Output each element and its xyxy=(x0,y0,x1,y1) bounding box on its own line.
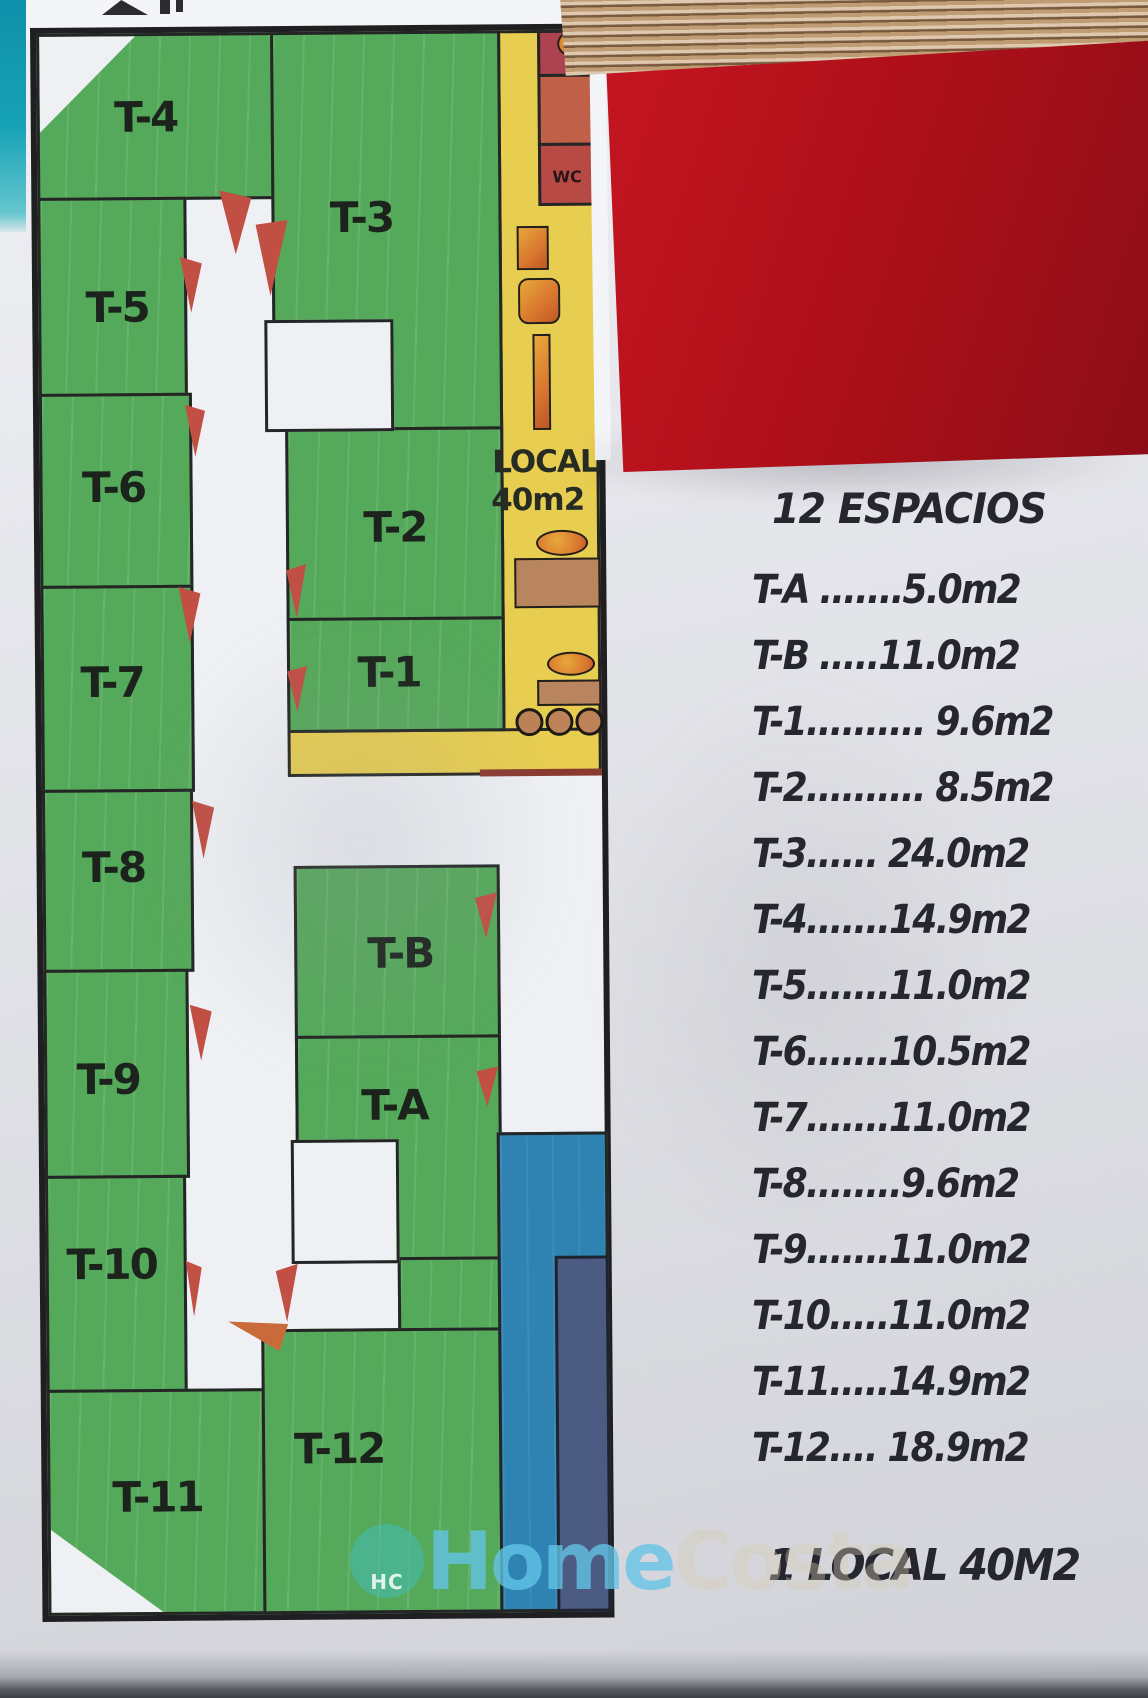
paper-bottom-edge xyxy=(0,1650,1148,1698)
room-label-t12: T-12 xyxy=(294,1424,385,1474)
legend-item: T-1.......... 9.6m2 xyxy=(752,689,1108,755)
legend-item: T-8........9.6m2 xyxy=(752,1151,1108,1217)
stool-icon xyxy=(545,708,573,736)
furniture-rounded xyxy=(518,278,560,324)
legend-item: T-5.......11.0m2 xyxy=(752,953,1108,1019)
legend-item: T-11.....14.9m2 xyxy=(752,1349,1108,1415)
door-swing-icon xyxy=(219,190,252,254)
room-label-t10: T-10 xyxy=(66,1240,157,1290)
door-swing-icon xyxy=(190,1005,212,1061)
legend-item: T-6.......10.5m2 xyxy=(752,1019,1108,1085)
wc-label: WC xyxy=(552,167,582,186)
threshold-strip xyxy=(480,769,602,777)
stair-cutout xyxy=(264,319,394,432)
stool-icon xyxy=(575,708,603,736)
room-label-ta: T-A xyxy=(361,1080,428,1130)
room-label-t2: T-2 xyxy=(363,502,427,551)
room-ta-extension xyxy=(398,1256,504,1335)
door-swing-icon xyxy=(276,1264,298,1322)
legend-item: T-B .....11.0m2 xyxy=(752,623,1108,689)
door-swing-icon xyxy=(186,1261,202,1317)
space-list-items: T-A .......5.0m2T-B .....11.0m2T-1......… xyxy=(752,557,1148,1481)
room-label-t8: T-8 xyxy=(82,843,146,892)
legend-item: T-9.......11.0m2 xyxy=(752,1217,1108,1283)
room-label-t9: T-9 xyxy=(76,1055,140,1104)
photo-of-floorplan-sheet: { "plan": { "rooms": [ {"id": "t4", "lab… xyxy=(0,0,1148,1698)
red-book-cover xyxy=(606,28,1148,472)
legend-item: T-10.....11.0m2 xyxy=(752,1283,1108,1349)
service-room xyxy=(537,74,597,146)
stool-icon xyxy=(515,708,543,736)
room-label-t3: T-3 xyxy=(330,193,394,242)
door-swing-icon xyxy=(192,801,214,859)
partial-print-glyph xyxy=(176,0,183,12)
space-list: 12 ESPACIOS T-A .......5.0m2T-B .....11.… xyxy=(752,484,1148,1481)
floor-plan: T-4 T-3 T-5 T-6 T-2 T-1 T-7 T-8 T-B T-9 … xyxy=(30,24,615,1622)
legend-item: T-7.......11.0m2 xyxy=(752,1085,1108,1151)
room-label-tb: T-B xyxy=(367,928,433,978)
space-list-title: 12 ESPACIOS xyxy=(772,484,1125,533)
room-label-t5: T-5 xyxy=(85,283,149,332)
room-label-t7: T-7 xyxy=(80,658,144,707)
room-label-t4: T-4 xyxy=(114,92,178,141)
furniture-rect xyxy=(517,226,549,270)
legend-item: T-2.......... 8.5m2 xyxy=(752,755,1108,821)
table-edge xyxy=(0,0,26,232)
door-swing-icon xyxy=(228,1321,288,1351)
legend-item: T-A .......5.0m2 xyxy=(752,557,1108,623)
legend-item: T-4.......14.9m2 xyxy=(752,887,1108,953)
room-label-t6: T-6 xyxy=(82,463,146,512)
stair-cutout xyxy=(291,1139,400,1264)
pool-deep-area xyxy=(555,1255,612,1611)
partial-print-glyph xyxy=(160,0,170,14)
legend-item: T-3...... 24.0m2 xyxy=(752,821,1108,887)
room-label-t11: T-11 xyxy=(112,1472,203,1522)
counter-rect xyxy=(514,558,600,609)
furniture-tall xyxy=(532,334,551,430)
room-label-t1: T-1 xyxy=(357,647,421,696)
local-area-label: 40m2 xyxy=(476,482,600,519)
space-list-footer: 1 LOCAL 40M2 xyxy=(768,1540,1079,1591)
counter-rect xyxy=(537,680,601,707)
legend-item: T-12.... 18.9m2 xyxy=(752,1415,1108,1481)
